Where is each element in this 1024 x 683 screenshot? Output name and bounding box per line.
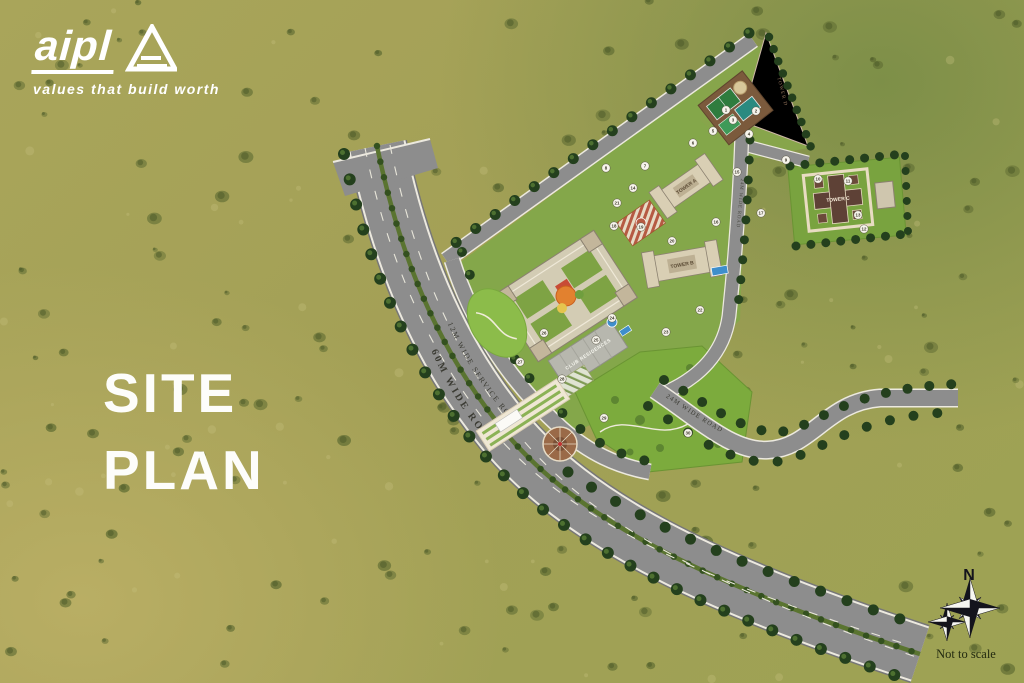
plan-marker: 7: [641, 162, 649, 170]
plan-marker: 10: [814, 175, 822, 183]
svg-text:21: 21: [615, 201, 620, 206]
plan-marker: 6: [689, 139, 697, 147]
plan-marker: 28: [558, 375, 566, 383]
svg-text:10: 10: [816, 177, 821, 182]
page-title: SITE PLAN: [103, 366, 265, 498]
svg-text:14: 14: [631, 186, 636, 191]
compass-note: Not to scale: [936, 647, 996, 661]
page-title-line2: PLAN: [103, 443, 265, 498]
plan-marker: 11: [844, 177, 852, 185]
plan-marker: 13: [854, 211, 862, 219]
plan-marker: 20: [668, 237, 676, 245]
svg-text:13: 13: [856, 213, 861, 218]
plan-marker: 14: [629, 184, 637, 192]
svg-text:29: 29: [602, 416, 607, 421]
brand-tagline: values that build worth: [33, 81, 220, 97]
plan-marker: 29: [600, 414, 608, 422]
plan-marker: 12: [860, 225, 868, 233]
plan-marker: 27: [516, 358, 524, 366]
plan-marker: 15: [733, 168, 741, 176]
plan-marker: 1: [722, 106, 730, 114]
svg-text:25: 25: [594, 338, 599, 343]
svg-text:11: 11: [846, 179, 851, 184]
plan-marker: 22: [696, 306, 704, 314]
brand-logo-text: aipl: [31, 25, 117, 74]
svg-text:20: 20: [670, 239, 675, 244]
plan-marker: 21: [613, 199, 621, 207]
svg-text:18: 18: [612, 224, 617, 229]
svg-text:23: 23: [664, 330, 669, 335]
compass: N Not to scale: [928, 567, 1000, 661]
svg-text:12: 12: [862, 227, 867, 232]
svg-text:16: 16: [714, 220, 719, 225]
svg-text:19: 19: [639, 225, 644, 230]
compass-rose-icon: [928, 578, 1000, 641]
plan-marker: 23: [662, 328, 670, 336]
plan-marker: 17: [757, 209, 765, 217]
page-title-line1: SITE: [103, 366, 265, 421]
plan-marker: 24: [608, 314, 616, 322]
svg-text:24: 24: [610, 316, 615, 321]
plan-marker: 4: [745, 130, 753, 138]
svg-text:22: 22: [698, 308, 703, 313]
drop-off-court: [543, 427, 577, 461]
svg-text:28: 28: [560, 377, 565, 382]
plan-marker: 9: [782, 156, 790, 164]
plan-marker: 8: [602, 164, 610, 172]
site-plan-page: TOWER D: [0, 0, 1024, 683]
plan-marker: 25: [592, 336, 600, 344]
plan-marker: 30: [684, 429, 692, 437]
plan-marker: 16: [712, 218, 720, 226]
plan-marker: 19: [637, 223, 645, 231]
plan-marker: 2: [752, 107, 760, 115]
svg-text:30: 30: [686, 431, 691, 436]
plan-marker: 5: [709, 127, 717, 135]
plan-marker: 3: [729, 116, 737, 124]
svg-text:26: 26: [542, 331, 547, 336]
plan-marker: 26: [540, 329, 548, 337]
svg-text:17: 17: [759, 211, 764, 216]
tower-c-annex: [875, 181, 896, 209]
svg-text:15: 15: [735, 170, 740, 175]
brand-logo: aipl values that build worth: [33, 24, 220, 97]
plan-marker: 18: [610, 222, 618, 230]
svg-text:27: 27: [518, 360, 523, 365]
site-plan-drawing: TOWER D: [0, 0, 1024, 683]
logo-triangle-icon: [125, 24, 177, 72]
